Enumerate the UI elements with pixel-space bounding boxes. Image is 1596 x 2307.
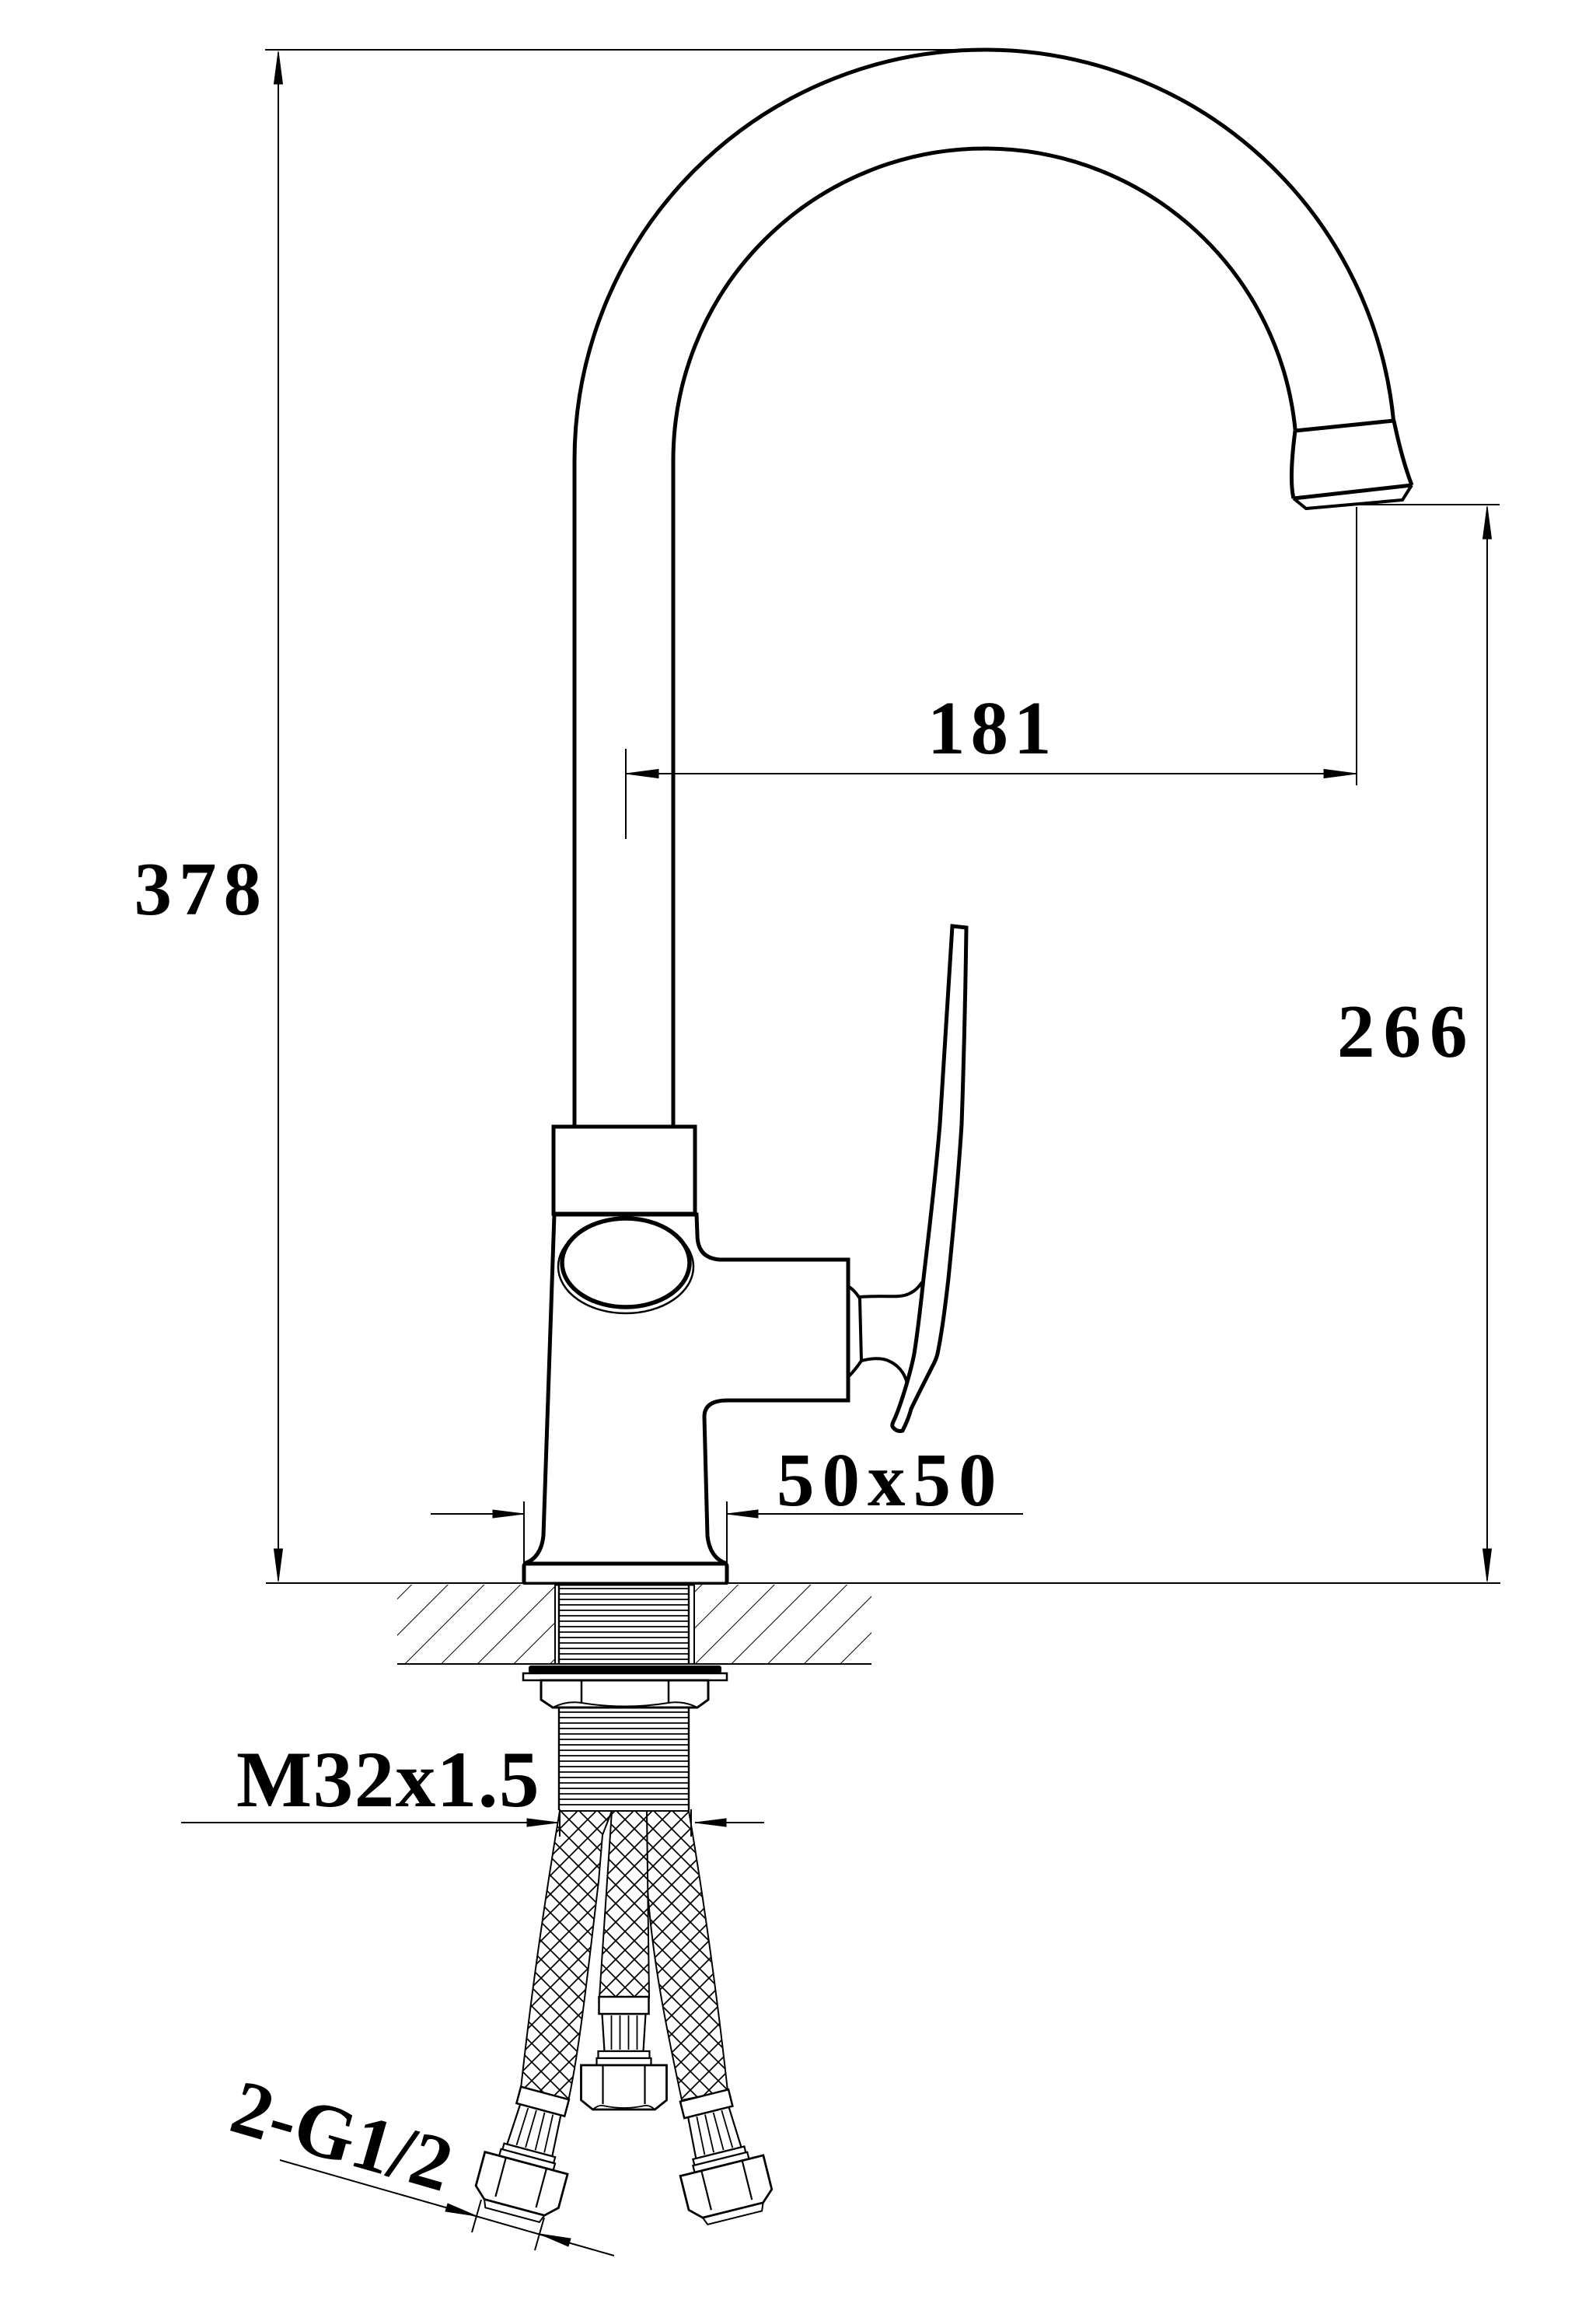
svg-text:378: 378: [134, 848, 269, 931]
svg-text:181: 181: [927, 687, 1057, 770]
svg-text:266: 266: [1337, 990, 1476, 1073]
svg-text:50x50: 50x50: [777, 1438, 1004, 1522]
svg-text:M32x1.5: M32x1.5: [236, 1735, 540, 1824]
